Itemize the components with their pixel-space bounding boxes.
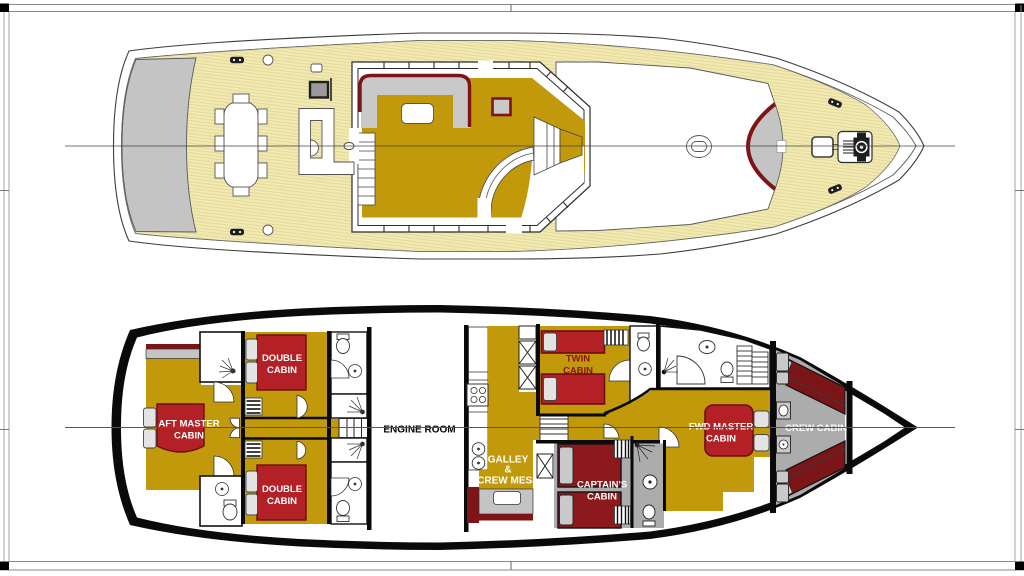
svg-text:CABIN: CABIN bbox=[267, 496, 297, 507]
svg-text:ENGINE ROOM: ENGINE ROOM bbox=[383, 425, 455, 436]
svg-text:CABIN: CABIN bbox=[174, 431, 204, 442]
svg-text:CABIN: CABIN bbox=[267, 365, 297, 376]
svg-text:CABIN: CABIN bbox=[706, 434, 736, 445]
svg-text:CABIN: CABIN bbox=[563, 366, 593, 377]
svg-text:TWIN: TWIN bbox=[566, 354, 590, 365]
svg-text:CREW MESS: CREW MESS bbox=[477, 476, 539, 487]
svg-text:FWD MASTER: FWD MASTER bbox=[689, 422, 754, 433]
svg-text:CABIN: CABIN bbox=[587, 492, 617, 503]
svg-text:&: & bbox=[504, 465, 511, 476]
svg-text:DOUBLE: DOUBLE bbox=[262, 484, 302, 495]
svg-text:DOUBLE: DOUBLE bbox=[262, 353, 302, 364]
svg-text:CREW CABIN: CREW CABIN bbox=[785, 423, 847, 434]
svg-text:CAPTAIN'S: CAPTAIN'S bbox=[577, 480, 627, 491]
